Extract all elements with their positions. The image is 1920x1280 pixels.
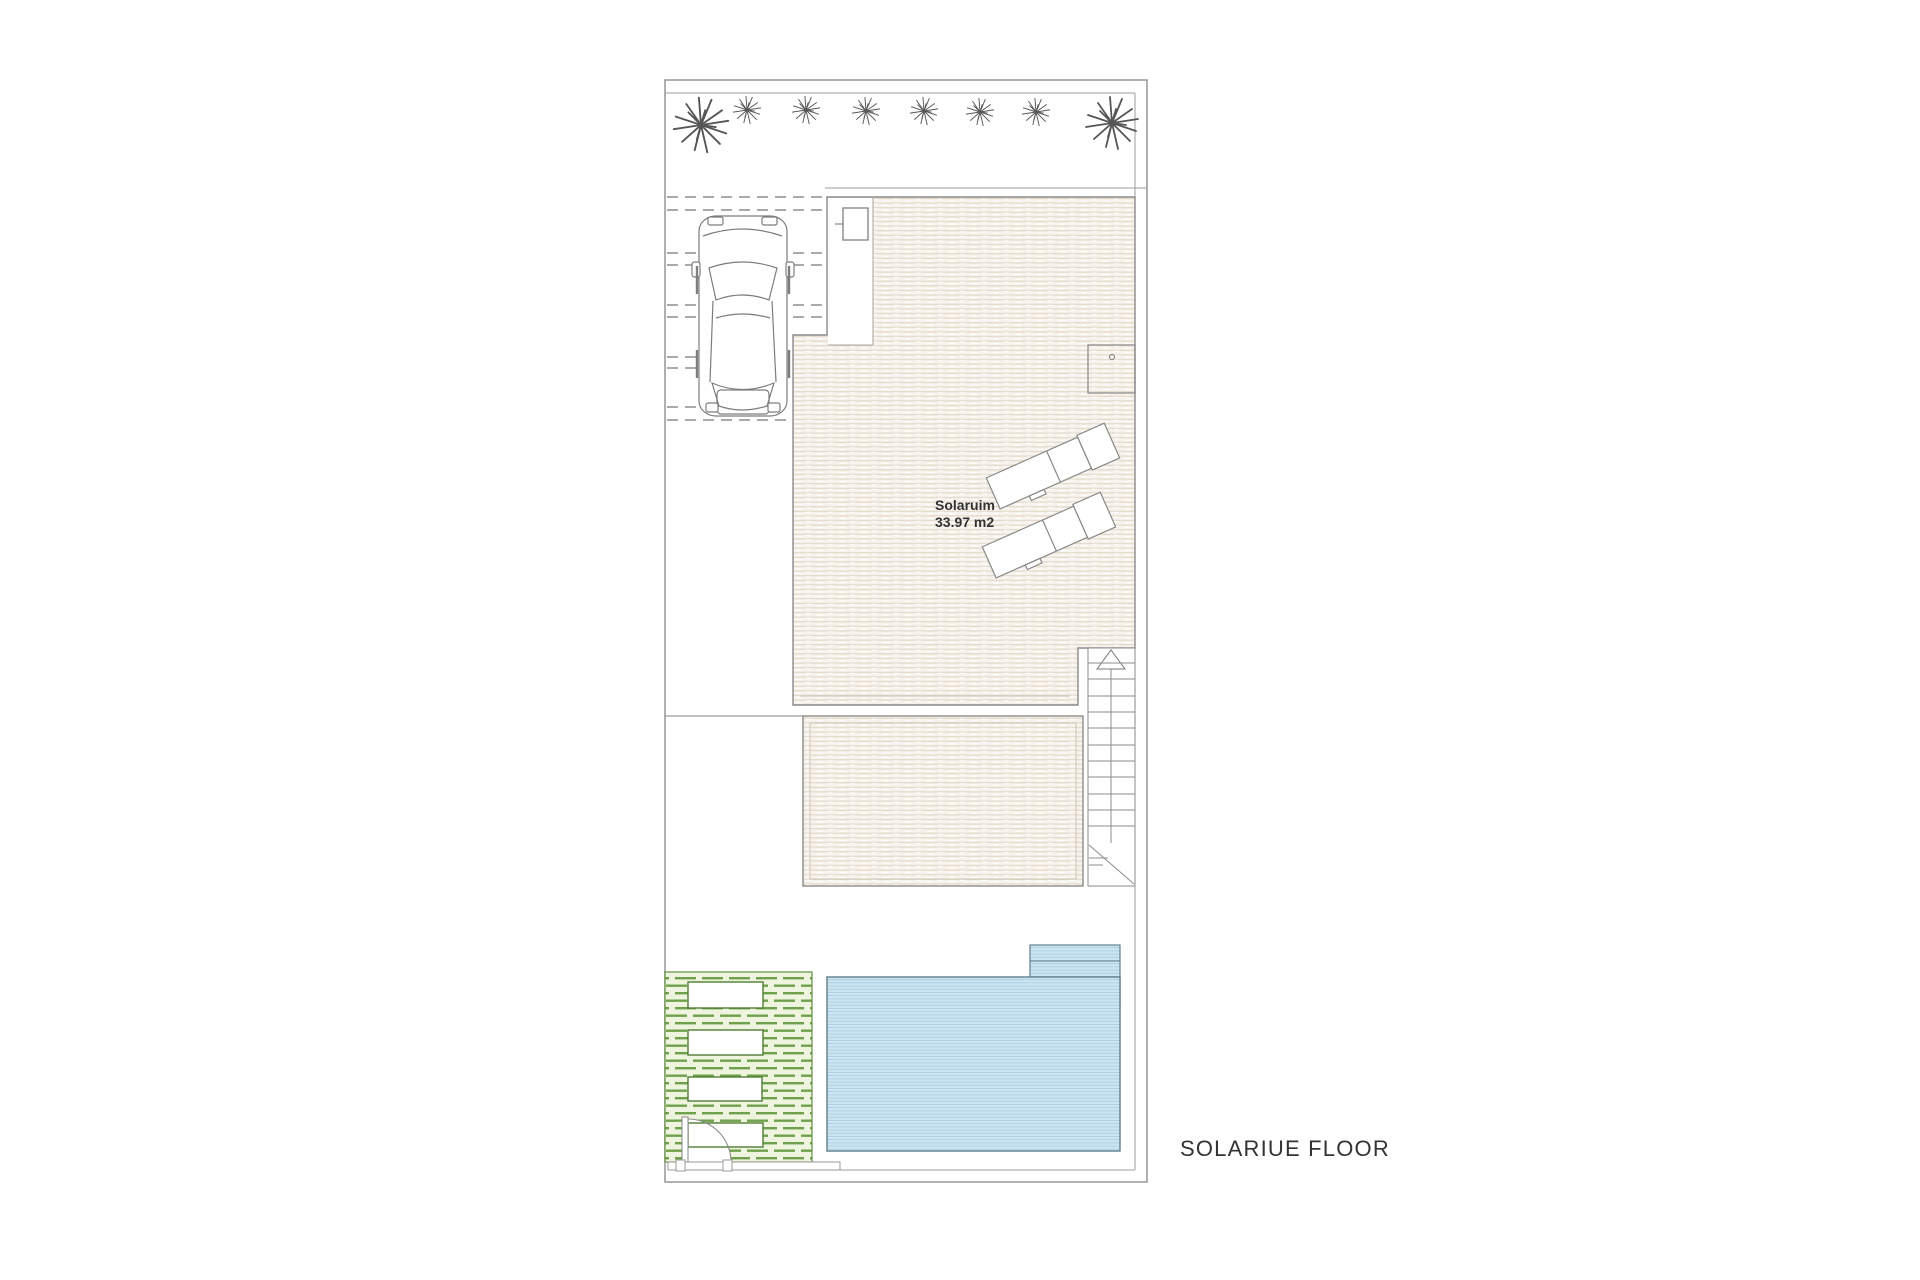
palm-tree-icon — [674, 98, 729, 153]
pergola-deck — [665, 972, 812, 1162]
palm-tree-icon — [1086, 97, 1138, 149]
pool — [827, 977, 1120, 1151]
tree-row — [674, 96, 1138, 152]
walkway — [668, 1160, 840, 1171]
corridor-door — [843, 208, 868, 240]
planter — [688, 982, 763, 1008]
lower-deck-area — [803, 716, 1083, 886]
planter — [688, 1030, 763, 1055]
walkway-post — [723, 1160, 732, 1171]
planter — [688, 1123, 763, 1147]
star-plant-icon — [1022, 98, 1049, 125]
gate-door-leaf — [682, 1117, 688, 1162]
car-front-tab — [762, 217, 777, 225]
walkway-slab — [668, 1162, 840, 1170]
pool-group — [827, 945, 1120, 1151]
car-front-tab — [708, 217, 723, 225]
floorplan-canvas: Solaruim 33.97 m2 SOLARIUE FLOOR — [0, 0, 1920, 1280]
solarium-label: Solaruim — [935, 497, 995, 513]
lower-deck — [803, 716, 1083, 886]
star-plant-icon — [910, 97, 937, 124]
star-plant-icon — [966, 98, 993, 125]
car-rear-tab — [706, 403, 718, 412]
planter — [688, 1077, 762, 1101]
star-plant-icon — [852, 97, 879, 124]
car-rear-tab — [768, 403, 780, 412]
car-icon — [692, 216, 794, 416]
star-plant-icon — [733, 96, 760, 123]
solarium-area-label: 33.97 m2 — [935, 514, 994, 530]
staircase — [1088, 648, 1135, 886]
walkway-post — [676, 1160, 685, 1171]
star-plant-icon — [792, 96, 819, 123]
floorplan-page: Solaruim 33.97 m2 SOLARIUE FLOOR — [0, 0, 1920, 1280]
floor-title: SOLARIUE FLOOR — [1180, 1136, 1390, 1161]
